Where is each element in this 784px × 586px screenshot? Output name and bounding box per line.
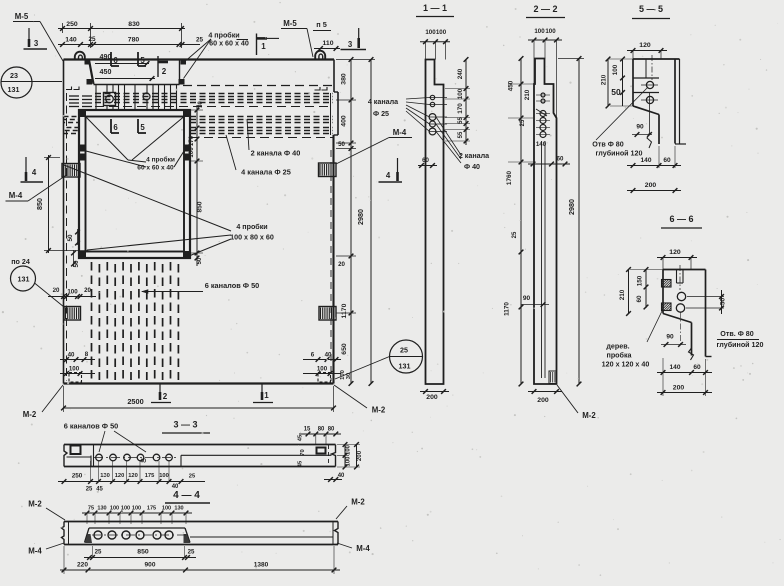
svg-text:130: 130 [100,473,110,479]
svg-text:100: 100 [612,64,619,75]
svg-text:4 канала: 4 канала [368,98,399,106]
svg-text:830: 830 [128,21,140,28]
svg-text:6 каналов Ф 50: 6 каналов Ф 50 [205,281,260,290]
svg-text:900: 900 [145,562,156,569]
svg-text:100: 100 [69,366,80,373]
svg-text:650: 650 [341,343,348,355]
svg-text:90: 90 [666,334,674,341]
svg-text:М-2: М-2 [372,406,386,415]
svg-text:90: 90 [636,124,644,131]
svg-text:25: 25 [512,231,518,238]
svg-text:6: 6 [113,123,118,132]
svg-text:2: 2 [163,392,168,401]
svg-text:25: 25 [196,37,204,44]
svg-text:80: 80 [328,427,335,433]
svg-text:6 — 6: 6 — 6 [669,214,693,224]
svg-text:1170: 1170 [341,303,348,318]
svg-text:15: 15 [304,427,311,433]
svg-text:50: 50 [611,87,621,97]
svg-text:150: 150 [637,275,644,286]
svg-text:М-4: М-4 [393,128,407,137]
svg-text:131: 131 [8,86,20,94]
svg-text:6 каналов Ф 50: 6 каналов Ф 50 [64,422,119,431]
svg-text:55: 55 [458,117,464,124]
svg-text:100: 100 [534,28,545,35]
svg-text:120: 120 [639,42,651,49]
svg-text:М-4: М-4 [356,544,370,553]
svg-text:120: 120 [669,249,681,256]
svg-text:250: 250 [66,21,78,28]
svg-text:п 5: п 5 [316,20,327,29]
svg-text:25: 25 [189,474,196,480]
svg-text:60: 60 [663,157,671,164]
svg-text:М-2: М-2 [582,411,596,420]
svg-text:240: 240 [457,68,464,79]
svg-text:131: 131 [18,276,30,284]
svg-text:глубиной 120: глубиной 120 [717,341,764,349]
svg-text:4: 4 [32,168,37,177]
svg-text:175: 175 [145,473,155,479]
svg-text:210: 210 [601,74,608,85]
svg-text:Ф 25: Ф 25 [373,110,389,118]
svg-text:100: 100 [346,456,352,467]
svg-text:1760: 1760 [506,170,513,185]
svg-text:25: 25 [86,487,93,493]
svg-text:3: 3 [34,39,39,48]
svg-text:20: 20 [338,261,345,268]
svg-text:140: 140 [536,141,547,148]
svg-text:М-2: М-2 [28,500,42,509]
svg-text:2980: 2980 [357,209,365,225]
svg-text:1170: 1170 [504,302,511,316]
svg-text:80: 80 [318,427,325,433]
svg-text:4 канала Ф 25: 4 канала Ф 25 [241,168,291,177]
svg-text:2 канала: 2 канала [459,152,490,160]
svg-text:45: 45 [298,460,304,467]
svg-text:55: 55 [458,131,464,138]
svg-text:90: 90 [523,295,531,302]
svg-text:2: 2 [162,67,167,76]
svg-text:100 х 80 х 60: 100 х 80 х 60 [230,234,274,242]
svg-text:50: 50 [197,257,203,264]
svg-text:75: 75 [88,506,94,512]
svg-text:60: 60 [693,364,701,371]
svg-text:170: 170 [188,135,195,146]
svg-text:70: 70 [300,449,306,455]
svg-text:М-5: М-5 [15,12,29,21]
svg-text:М-2: М-2 [351,498,365,507]
svg-text:25: 25 [400,347,408,355]
svg-text:М-4: М-4 [9,191,23,200]
svg-text:175: 175 [147,506,156,512]
svg-text:450: 450 [100,68,112,76]
svg-text:780: 780 [128,37,140,44]
svg-text:дерев.: дерев. [606,343,629,351]
svg-text:130: 130 [174,506,183,512]
svg-text:по 24: по 24 [11,258,30,266]
svg-text:140: 140 [641,157,652,164]
svg-text:3: 3 [348,40,353,49]
svg-text:60 х 60 х 40: 60 х 60 х 40 [137,165,174,172]
svg-text:100: 100 [436,29,447,36]
svg-text:200: 200 [673,385,685,392]
svg-text:100: 100 [110,506,119,512]
svg-text:120 х 120 х 40: 120 х 120 х 40 [602,361,650,369]
svg-text:850: 850 [36,198,44,210]
svg-text:100: 100 [317,366,328,373]
svg-text:Ф 40: Ф 40 [464,163,480,171]
svg-text:8: 8 [85,351,89,358]
svg-text:130: 130 [97,506,106,512]
svg-text:40: 40 [325,352,332,359]
svg-text:4 — 4: 4 — 4 [173,490,200,501]
svg-text:380: 380 [341,73,348,85]
svg-text:пробка: пробка [607,352,633,360]
svg-text:Отв Ф 80: Отв Ф 80 [592,141,623,149]
svg-text:23: 23 [10,72,18,80]
svg-text:2 — 2: 2 — 2 [533,4,557,14]
svg-text:25: 25 [188,549,195,556]
svg-text:2 канала Ф 40: 2 канала Ф 40 [251,149,301,158]
svg-text:60: 60 [557,156,564,163]
svg-text:200: 200 [426,394,438,401]
svg-text:200: 200 [645,182,657,189]
svg-text:5: 5 [140,123,145,132]
svg-text:100: 100 [425,29,436,36]
svg-text:30: 30 [198,101,204,108]
svg-text:100: 100 [121,506,130,512]
svg-text:25: 25 [95,549,102,556]
svg-text:100: 100 [188,147,195,158]
svg-text:2980: 2980 [568,199,576,215]
svg-text:850: 850 [197,201,204,212]
svg-text:1: 1 [264,391,269,400]
svg-text:131: 131 [399,363,411,371]
svg-text:40: 40 [68,352,75,359]
svg-text:220: 220 [77,562,88,569]
svg-text:25: 25 [88,36,96,43]
svg-text:4 пробки: 4 пробки [236,223,267,231]
svg-text:200: 200 [356,450,363,461]
svg-text:25: 25 [520,119,526,126]
svg-text:140: 140 [670,364,681,371]
svg-text:60: 60 [636,295,643,303]
svg-text:20: 20 [53,287,60,294]
svg-text:3 — 3: 3 — 3 [173,420,197,430]
svg-text:4: 4 [386,171,391,180]
svg-text:100: 100 [457,88,464,99]
svg-text:120: 120 [128,473,138,479]
svg-text:1 — 1: 1 — 1 [423,3,447,13]
svg-text:50: 50 [67,234,74,242]
svg-text:Отв. Ф 80: Отв. Ф 80 [720,330,753,338]
svg-text:6: 6 [311,352,315,359]
svg-text:490: 490 [100,53,112,61]
svg-text:50: 50 [338,141,345,148]
svg-text:210: 210 [524,89,531,100]
svg-text:110: 110 [322,40,333,47]
svg-text:170: 170 [457,103,464,114]
svg-text:2500: 2500 [127,397,143,406]
svg-text:М-4: М-4 [28,547,42,556]
svg-text:850: 850 [137,549,149,556]
svg-text:120: 120 [115,473,125,479]
svg-text:100: 100 [162,506,171,512]
svg-text:М-5: М-5 [283,19,297,28]
svg-text:400: 400 [341,115,348,127]
svg-text:М-2: М-2 [23,410,37,419]
svg-text:20: 20 [84,287,91,294]
svg-text:200: 200 [537,397,549,404]
svg-text:100: 100 [545,28,556,35]
svg-text:450: 450 [508,80,515,91]
svg-text:100: 100 [159,473,169,479]
svg-text:4 пробки: 4 пробки [146,156,175,164]
svg-text:45: 45 [298,434,304,441]
svg-text:210: 210 [619,289,626,300]
svg-text:100: 100 [346,444,352,455]
svg-text:50: 50 [720,298,727,306]
svg-text:4 пробки: 4 пробки [208,32,239,40]
svg-text:5 — 5: 5 — 5 [639,4,663,14]
svg-text:100: 100 [67,289,78,296]
svg-text:глубиной 120: глубиной 120 [596,150,643,158]
svg-text:100: 100 [132,506,141,512]
svg-text:40: 40 [338,473,345,479]
svg-text:40: 40 [140,459,146,465]
svg-text:50: 50 [73,260,80,268]
svg-text:1: 1 [261,42,266,51]
svg-text:60 х 60 х 40: 60 х 60 х 40 [209,40,249,48]
svg-text:140: 140 [65,37,77,44]
